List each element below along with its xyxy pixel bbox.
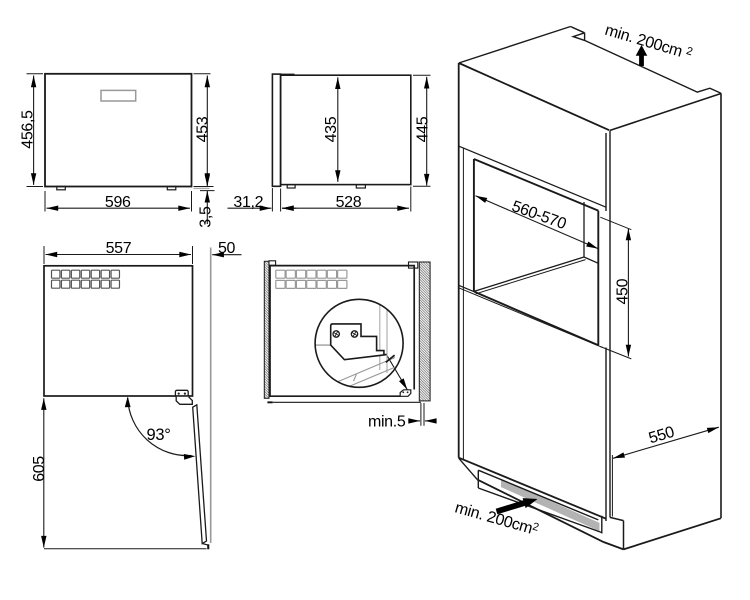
svg-text:560-570: 560-570 — [509, 198, 568, 233]
svg-text:605: 605 — [31, 456, 48, 482]
svg-text:93°: 93° — [147, 426, 171, 444]
svg-text:31,2: 31,2 — [233, 194, 263, 211]
svg-text:445: 445 — [414, 116, 431, 142]
svg-text:450: 450 — [614, 278, 631, 304]
svg-text:3,5: 3,5 — [198, 206, 215, 228]
svg-text:528: 528 — [336, 194, 362, 211]
svg-text:min. 200cm 2: min. 200cm 2 — [603, 21, 694, 63]
svg-text:435: 435 — [323, 116, 340, 142]
svg-text:596: 596 — [105, 194, 131, 211]
svg-text:min.5: min.5 — [368, 414, 406, 431]
svg-text:557: 557 — [106, 240, 132, 257]
svg-text:453: 453 — [195, 116, 212, 142]
svg-text:456,5: 456,5 — [19, 110, 36, 149]
svg-text:550: 550 — [647, 424, 677, 448]
svg-text:50: 50 — [218, 240, 236, 257]
